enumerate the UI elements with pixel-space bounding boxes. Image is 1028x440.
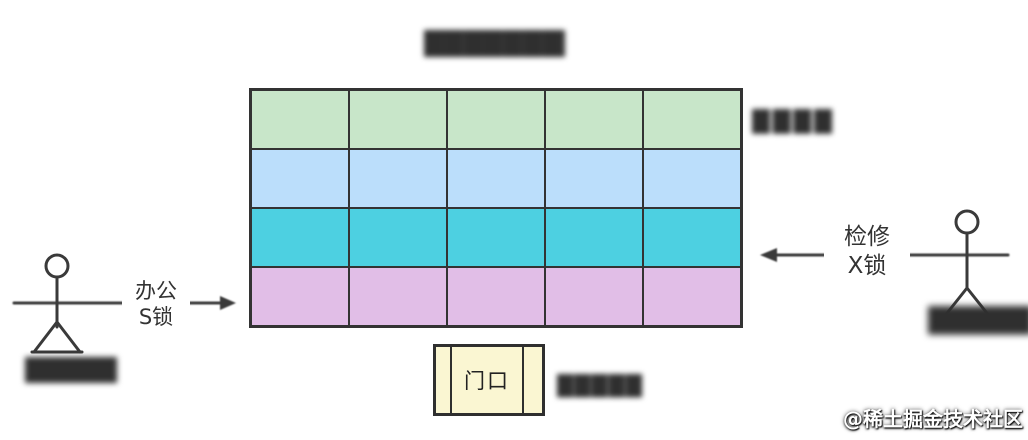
- door-inner-line-right: [522, 347, 524, 413]
- grid-cell: [546, 268, 642, 325]
- grid-cell: [546, 209, 642, 266]
- room-grid: [249, 88, 743, 328]
- grid-cell: [252, 209, 348, 266]
- grid-cell: [448, 268, 544, 325]
- grid-cell: [644, 91, 740, 148]
- grid-cell: [448, 209, 544, 266]
- grid-side-label-blurred: ████: [752, 109, 835, 135]
- left-lock-label: 办公 S锁: [122, 277, 190, 331]
- grid-cell: [252, 91, 348, 148]
- right-lock-label: 检修 X锁: [824, 222, 910, 282]
- grid-cell: [350, 268, 446, 325]
- grid-cell: [546, 91, 642, 148]
- grid-cell: [448, 150, 544, 207]
- right-lock-label-line2: X锁: [827, 252, 907, 281]
- grid-cell: [350, 150, 446, 207]
- left-lock-label-line1: 办公: [125, 278, 187, 304]
- entrance-box: 门口: [433, 344, 545, 416]
- left-actor-name-blurred: █████: [25, 357, 117, 385]
- watermark: @稀土掘金技术社区: [843, 403, 1023, 432]
- grid-cell: [350, 91, 446, 148]
- grid-cell: [252, 268, 348, 325]
- entrance-note-blurred: █████: [557, 374, 643, 399]
- door-inner-line-left: [450, 347, 452, 413]
- right-lock-label-line1: 检修: [827, 223, 907, 252]
- left-actor-head: [46, 255, 68, 277]
- diagram-canvas: ████████ ████ █████ 办公 S锁: [0, 0, 1028, 440]
- grid-cell: [350, 209, 446, 266]
- grid-cell: [448, 91, 544, 148]
- grid-cell: [644, 268, 740, 325]
- left-lock-label-line2: S锁: [125, 304, 187, 330]
- grid-cell: [252, 150, 348, 207]
- entrance-label: 门口: [453, 347, 521, 413]
- grid-cell: [644, 150, 740, 207]
- grid-cell: [546, 150, 642, 207]
- diagram-title-blurred: ████████: [424, 30, 565, 57]
- right-actor-name-blurred: █████: [928, 306, 1028, 340]
- grid-cell: [644, 209, 740, 266]
- right-actor-head: [956, 211, 978, 233]
